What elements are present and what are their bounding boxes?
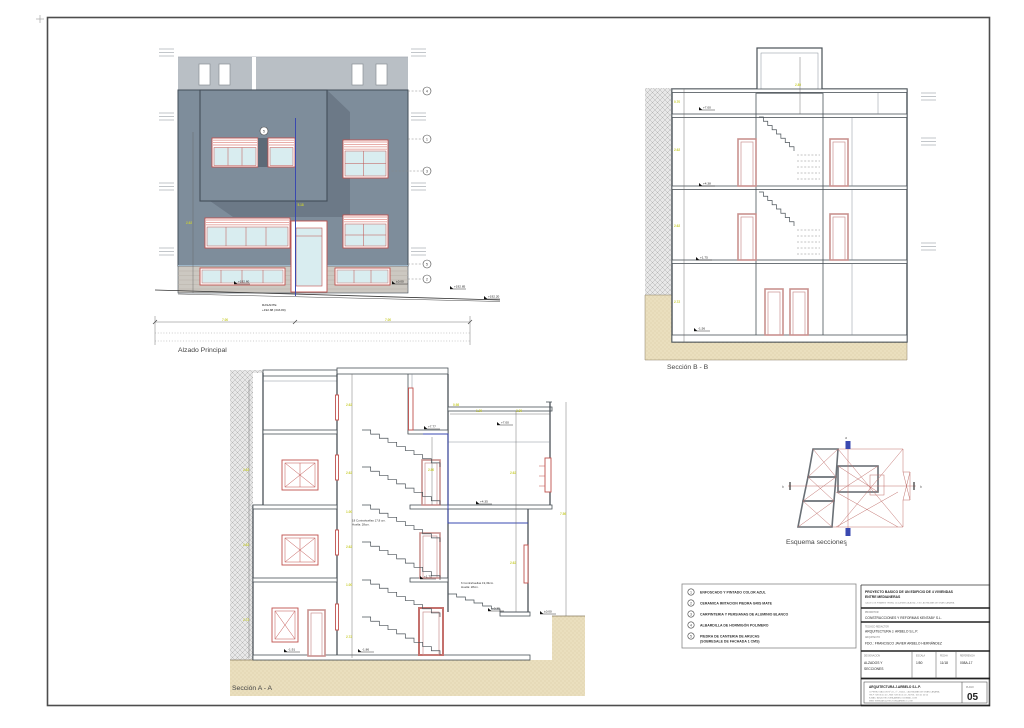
designacion-value: SECCIONES	[864, 667, 884, 671]
level-label: +4.35	[480, 500, 488, 504]
rasante-label: RASANTE	[262, 303, 277, 307]
legend-item: PIEDRA DE CANTERIA DE ARUCAS	[700, 634, 760, 638]
plano-label: PLANO	[966, 686, 974, 689]
level-label: +0.35	[492, 607, 500, 611]
entrance-door	[291, 221, 327, 292]
dim-label: 1.00	[346, 510, 352, 514]
callout-number: 5	[426, 263, 428, 267]
section-letter: b	[920, 485, 922, 489]
stair-note: Huella: 28cm.	[352, 523, 370, 527]
dim-label: 2.62	[674, 148, 680, 152]
drawing-sheet: 7.00 7.00 5.18 2.62 +192.60 ±0.00 +192.8…	[0, 0, 1024, 723]
window-floor1-left	[205, 218, 290, 248]
section-window	[282, 460, 318, 490]
callout-3: 3	[423, 167, 431, 175]
seccion-a-caption: Sección A - A	[232, 685, 273, 692]
referencia-label: REFERENCIA	[960, 655, 975, 658]
dim-label: 2.62	[346, 471, 352, 475]
level-label: +1.75	[424, 575, 432, 579]
legend-number: 5	[690, 634, 692, 638]
dim-label: 2.30	[516, 409, 522, 413]
terrain-hatch	[645, 88, 672, 295]
plano-number: 05	[967, 692, 979, 703]
section-marker	[846, 528, 851, 536]
alzado-caption: Alzado Principal	[178, 347, 227, 354]
dim-label: 2.80	[428, 468, 434, 472]
dim-label: 2.62	[674, 224, 680, 228]
window-floor2-right	[343, 140, 388, 178]
tecnico-name: ARQUITECTURA J. ARBELO S.L.P.	[865, 630, 918, 634]
callout-1: 1	[423, 135, 431, 143]
level-label: +7.77	[428, 425, 436, 429]
firm-info: WEB: WWW.ARQUITECTURAJARBELO.COM	[869, 700, 913, 703]
level-label: +7.00	[703, 106, 711, 110]
level-label: -1.56	[698, 327, 705, 331]
tecnico-label: TECNICO REDACTOR	[865, 626, 889, 629]
legend-number: 2	[690, 601, 692, 605]
callout-top: 4	[423, 87, 431, 95]
level-label: -1.91	[288, 648, 295, 652]
legend-item: (SOBRESALE DE FACHADA 1 CMS)	[700, 640, 760, 644]
promotor-name: CONSTRUCCIONES Y REFORMAS KENTABY S.L.	[865, 616, 942, 620]
arquitecto-label: ARQUITECTO	[865, 636, 880, 639]
level-label: +7.00	[501, 421, 509, 425]
legend-number: 4	[690, 623, 692, 627]
level-label: ±0.00	[396, 280, 404, 284]
callout-number: 3	[426, 170, 428, 174]
window-floor2-left	[212, 138, 295, 167]
fecha-label: FECHA	[940, 655, 948, 658]
dim-label: 2.62	[186, 221, 192, 225]
stair-tower	[757, 48, 822, 93]
legend-number: 1	[690, 590, 692, 594]
dim-label: 2.62	[510, 471, 516, 475]
firm-info: TELF: 928 36 41 00 - FAX: 928 36 41 00 -…	[869, 694, 929, 697]
level-label: +192.60	[238, 280, 250, 284]
section-window	[272, 608, 298, 642]
section-marker	[846, 441, 851, 449]
callout-2: 2	[423, 275, 431, 283]
callout-volume: 5	[260, 127, 268, 135]
firm-name: ARQUITECTURA J.ARBELO S.L.P.	[869, 685, 921, 689]
level-label: ±0.00	[544, 610, 552, 614]
level-label: +192.85	[454, 285, 466, 289]
stair-note: Huella: 28cm.	[461, 585, 479, 589]
callout-number: 5	[263, 130, 265, 134]
designacion-value: ALZADOS Y	[864, 661, 883, 665]
firm-info: C/ PEREZ GALDOS Nº 24 - 1º - 35002 - LAS…	[869, 691, 940, 694]
dim-label: 0.70	[674, 100, 680, 104]
dim-label: 2.72	[243, 618, 249, 622]
sheet-svg: 7.00 7.00 5.18 2.62 +192.60 ±0.00 +192.8…	[0, 0, 1024, 723]
promotor-label: PROMOTOR	[865, 612, 879, 614]
dim-label: 2.72	[674, 300, 680, 304]
dim-label: 0.98	[453, 403, 459, 407]
escala-label: ESCALA	[916, 655, 926, 658]
firm-info: E-MAIL: ARQUITECTURAJARBELO@GMAIL.COM	[869, 697, 917, 700]
dim-label: 2.80	[795, 83, 801, 87]
dim-label: 7.56	[560, 512, 566, 516]
project-title: ENTRE MEDIANERAS	[865, 595, 901, 599]
callout-number: 2	[426, 278, 428, 282]
dim-label: 2.62	[346, 403, 352, 407]
rasante-value: +192.88 (343.80)	[262, 308, 286, 312]
dim-label: 2.72	[346, 635, 352, 639]
callout-number: 4	[426, 90, 428, 94]
dim-label: 1.20	[476, 409, 482, 413]
seccion-a-a: 2.62 2.62 2.72 2.62 2.62 1.00 2.62 1.00 …	[230, 368, 585, 696]
dim-label: 1.00	[346, 583, 352, 587]
dim-label: 2.62	[243, 468, 249, 472]
window-ground-right	[335, 268, 390, 285]
level-label: +4.38	[703, 182, 711, 186]
legend-number: 3	[690, 612, 692, 616]
arquitecto-name: FDO.: FRANCISCO JAVIER ARBELO HERNÁNDEZ	[865, 642, 942, 646]
seccion-b-b: 0.70 2.62 2.62 2.72 2.80 +7.00 +4.38 +1.…	[645, 48, 936, 371]
level-label: +1.75	[700, 256, 708, 260]
seccion-b-caption: Sección B - B	[667, 364, 709, 371]
section-window	[282, 535, 318, 565]
legend-item: CERAMICA IMITACION PIEDRA GRIS MATE	[700, 601, 773, 605]
dim-label: 7.00	[385, 318, 391, 322]
dim-label: 2.62	[510, 561, 516, 565]
section-letter: a	[845, 436, 847, 440]
window-floor1-right	[343, 215, 388, 248]
referencia-value: 008A-17	[960, 661, 973, 665]
level-label: +192.20	[488, 295, 500, 299]
corner-mark	[36, 15, 44, 23]
dim-label: 2.62	[346, 545, 352, 549]
dim-label: 7.00	[222, 318, 228, 322]
project-title: PROYECTO BASICO DE UN EDIFICIO DE 4 VIVI…	[865, 590, 954, 594]
section-letter: b	[782, 485, 784, 489]
escala-value: 1/50	[916, 661, 923, 665]
callout-number: 1	[426, 138, 428, 142]
fecha-value: 11/18	[940, 661, 948, 665]
level-label: -1.86	[362, 648, 369, 652]
callout-5: 5	[423, 260, 431, 268]
legend-item: ENFOSCADO Y PINTADO COLOR AZUL	[700, 590, 767, 594]
designacion-label: DESIGNACION	[864, 655, 880, 658]
dim-label: 5.18	[298, 203, 304, 207]
neighbor-band	[178, 57, 408, 90]
legend-item: CARPINTERIA Y PERSIANAS DE ALUMINIO BLAN…	[700, 612, 789, 616]
esquema-caption: Esquema secciones	[786, 539, 847, 546]
dim-label: 2.62	[243, 543, 249, 547]
legend-item: ALBARDILLA DE HORMIGÓN POLIMERO	[700, 622, 769, 627]
project-address: CALLE LOS PINARES TRSRA, 12 (LA MINILLA …	[865, 602, 955, 605]
